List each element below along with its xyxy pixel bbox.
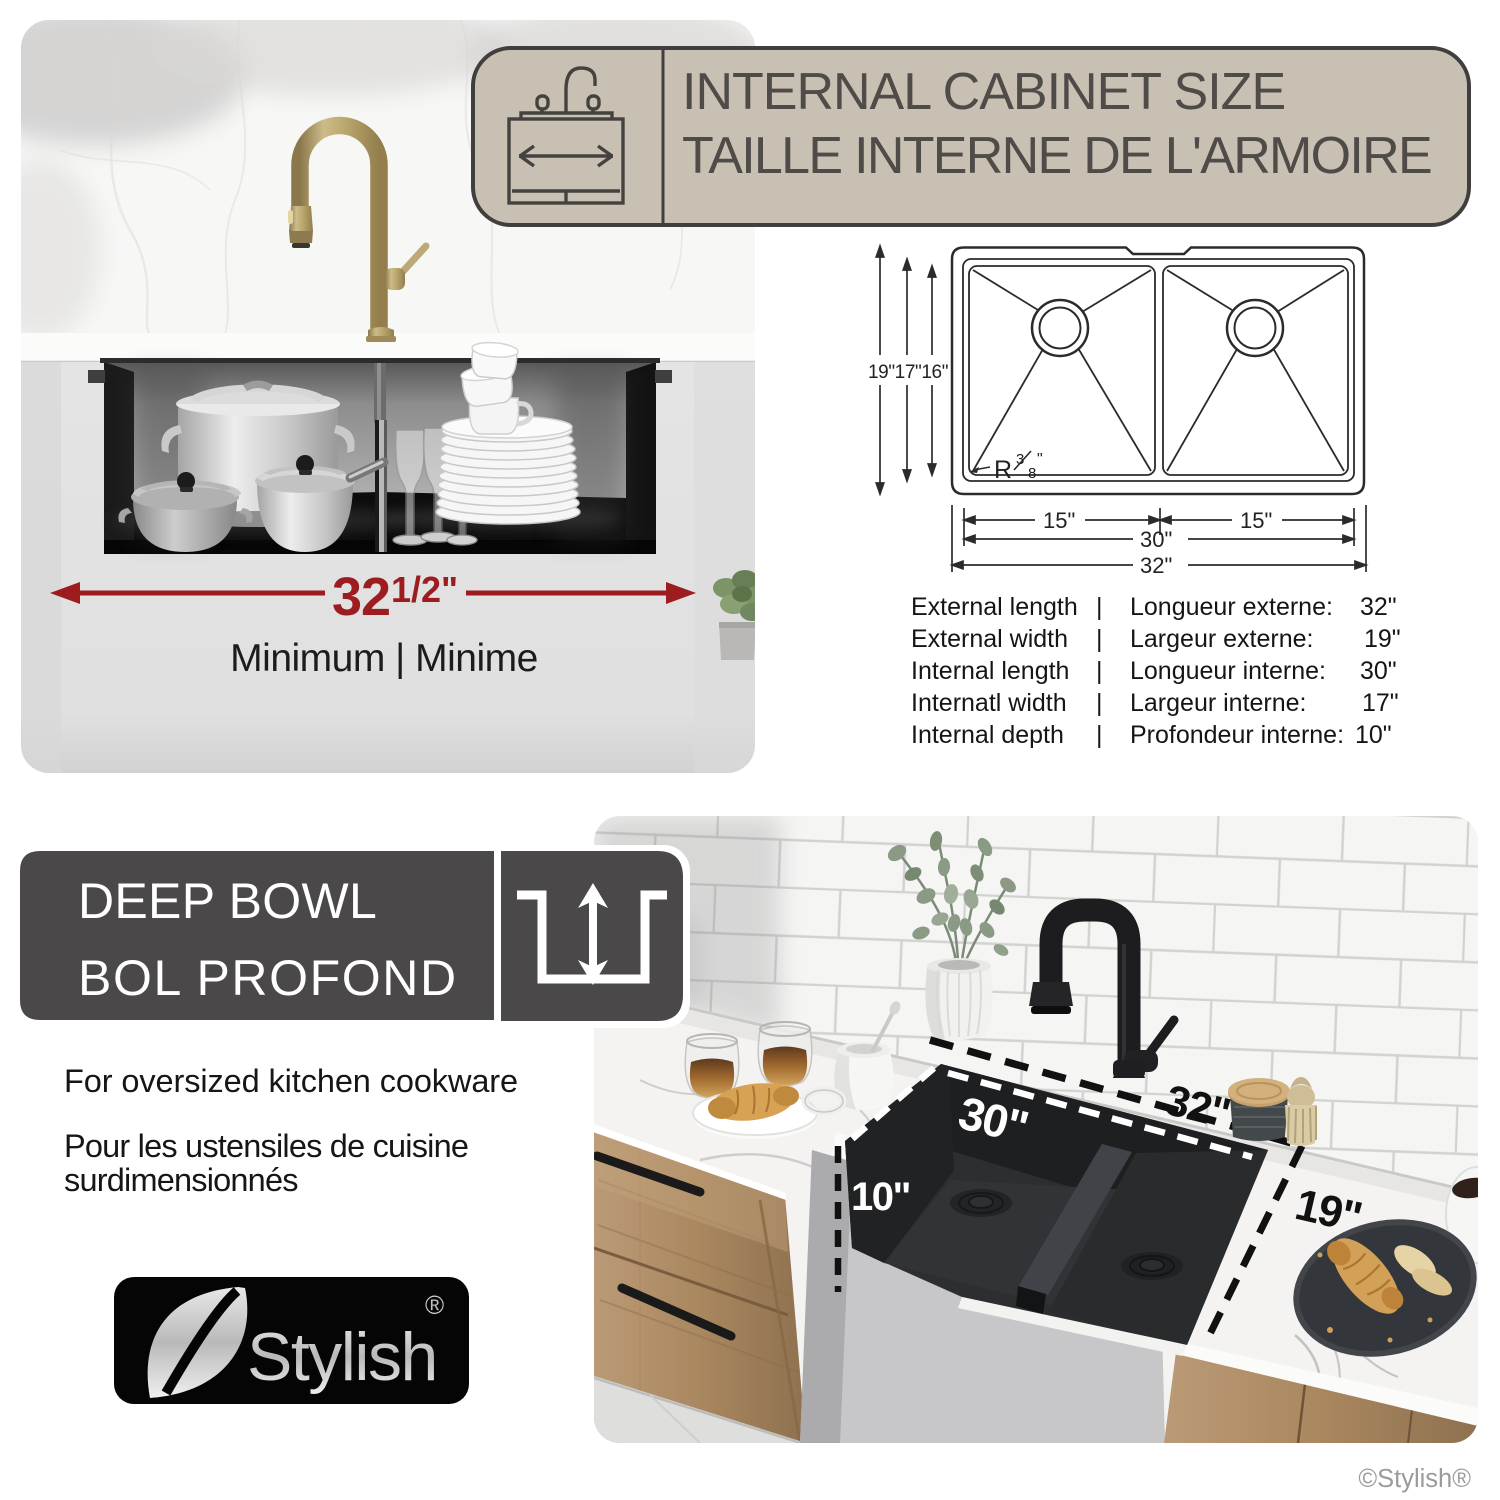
svg-text:30": 30" (1360, 657, 1397, 685)
svg-text:": " (1037, 451, 1043, 468)
svg-text:8: 8 (1028, 465, 1036, 482)
svg-text:1/2": 1/2" (391, 569, 458, 610)
svg-text:Longueur interne:: Longueur interne: (1130, 657, 1326, 685)
svg-text:Internal depth: Internal depth (911, 721, 1064, 749)
svg-text:®: ® (425, 1290, 444, 1320)
svg-text:BOL PROFOND: BOL PROFOND (78, 950, 458, 1006)
svg-text:Largeur externe:: Largeur externe: (1130, 625, 1313, 653)
svg-text:INTERNAL CABINET SIZE: INTERNAL CABINET SIZE (682, 63, 1285, 121)
svg-text:For oversized kitchen cookware: For oversized kitchen cookware (64, 1063, 518, 1099)
svg-text:External length: External length (911, 593, 1078, 621)
svg-text:surdimensionnés: surdimensionnés (64, 1162, 298, 1198)
svg-text:Internal length: Internal length (911, 657, 1069, 685)
svg-text:Longueur externe:: Longueur externe: (1130, 593, 1333, 621)
svg-text:19": 19" (1364, 625, 1401, 653)
svg-text:15": 15" (1240, 508, 1272, 533)
svg-text:|: | (1096, 721, 1103, 749)
svg-text:32: 32 (332, 567, 390, 627)
svg-text:|: | (1096, 593, 1103, 621)
svg-text:32": 32" (1140, 553, 1172, 578)
svg-text:Largeur interne:: Largeur interne: (1130, 689, 1307, 717)
svg-text:17": 17" (1362, 689, 1399, 717)
svg-text:DEEP BOWL: DEEP BOWL (78, 873, 377, 929)
svg-text:|: | (1096, 657, 1103, 685)
svg-text:R: R (994, 456, 1012, 484)
svg-text:10": 10" (851, 1175, 910, 1219)
svg-text:External width: External width (911, 625, 1068, 653)
svg-text:10": 10" (1355, 721, 1392, 749)
svg-text:19"17"16": 19"17"16" (868, 362, 948, 383)
svg-text:|: | (1096, 689, 1103, 717)
svg-text:Stylish: Stylish (247, 1319, 437, 1395)
svg-text:30": 30" (1140, 527, 1172, 552)
svg-text:Profondeur interne:: Profondeur interne: (1130, 721, 1344, 749)
svg-text:Pour les ustensiles de cuisine: Pour les ustensiles de cuisine (64, 1128, 468, 1164)
svg-text:TAILLE INTERNE DE L'ARMOIRE: TAILLE INTERNE DE L'ARMOIRE (682, 127, 1431, 185)
svg-text:Minimum | Minime: Minimum | Minime (230, 637, 538, 680)
svg-text:Internatl width: Internatl width (911, 689, 1067, 717)
svg-text:15": 15" (1043, 508, 1075, 533)
svg-text:©Stylish®: ©Stylish® (1358, 1465, 1471, 1493)
svg-text:32": 32" (1360, 593, 1397, 621)
svg-text:|: | (1096, 625, 1103, 653)
